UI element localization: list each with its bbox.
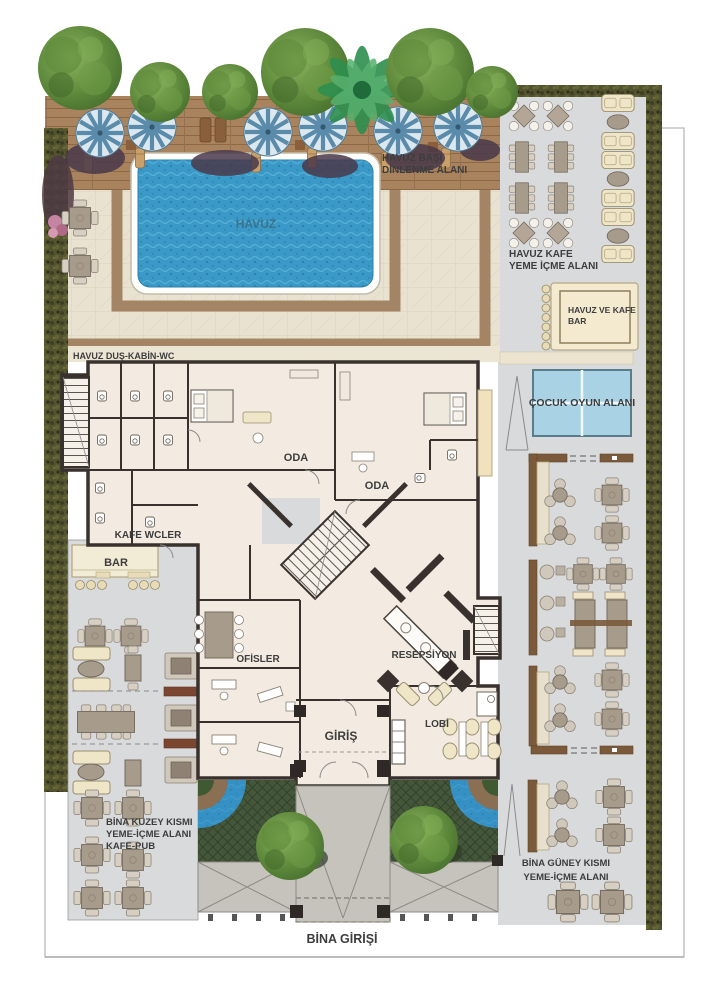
label-pool-rest-2: DİNLENME ALANI [382,163,467,176]
north-dining-area [68,540,198,920]
label-entrance: GİRİŞ [325,728,358,743]
entrance-courtyard [198,764,503,922]
tree [202,64,258,120]
label-pool-rest-1: HAVUZ BAŞI [382,153,443,164]
label-north-1: BİNA KUZEY KISMI [106,817,193,828]
tree [130,62,190,122]
label-south-2: YEME-İÇME ALANI [523,872,608,883]
stair-west [63,377,89,467]
label-cafe-wc: KAFE WCLER [115,530,182,541]
lounge-set-1 [73,647,110,691]
umbrella [244,108,292,156]
label-pool: HAVUZ [236,217,276,231]
pool-cafe-bar [542,283,638,350]
label-bar: BAR [104,557,128,569]
umbrella [76,109,124,157]
label-north-3: KAFE-PUB [106,841,155,852]
label-room-a: ODA [284,452,309,464]
floor-plan-drawing: HAVUZ BAŞI DİNLENME ALANI HAVUZ HAVUZ KA… [0,0,706,1000]
walkway-strip-east [500,352,633,364]
hedge-right [646,85,662,930]
label-pool-cafe-1: HAVUZ KAFE [509,249,573,260]
label-lobby: LOBİ [425,717,449,730]
label-north-2: YEME-İÇME ALANI [106,829,191,840]
label-south-1: BİNA GÜNEY KISMI [522,858,610,869]
tree [386,28,474,116]
label-kids: ÇOCUK OYUN ALANI [529,397,635,409]
booth-seating [164,653,198,783]
site-floor-plan: HAVUZ BAŞI DİNLENME ALANI HAVUZ HAVUZ KA… [0,0,706,1000]
apron-east [390,862,498,912]
tree [466,66,518,118]
label-shower: HAVUZ DUŞ-KABİN-WC [73,351,175,361]
tree [38,26,122,110]
label-pool-cafe-2: YEME İÇME ALANI [509,259,598,272]
label-pool-bar-2: BAR [568,316,586,326]
stair-east [474,606,499,654]
courtyard-tree-east [390,806,458,874]
courtyard-tree-west [256,812,324,880]
lounge-set-2 [73,751,110,794]
balcony-strip [478,390,492,476]
label-room-b: ODA [365,480,390,492]
label-pool-bar-1: HAVUZ VE KAFE [568,305,636,315]
label-reception: RESEPSİYON [391,648,456,661]
label-building-entrance: BİNA GİRİŞİ [306,931,377,946]
label-offices: OFİSLER [236,652,280,665]
